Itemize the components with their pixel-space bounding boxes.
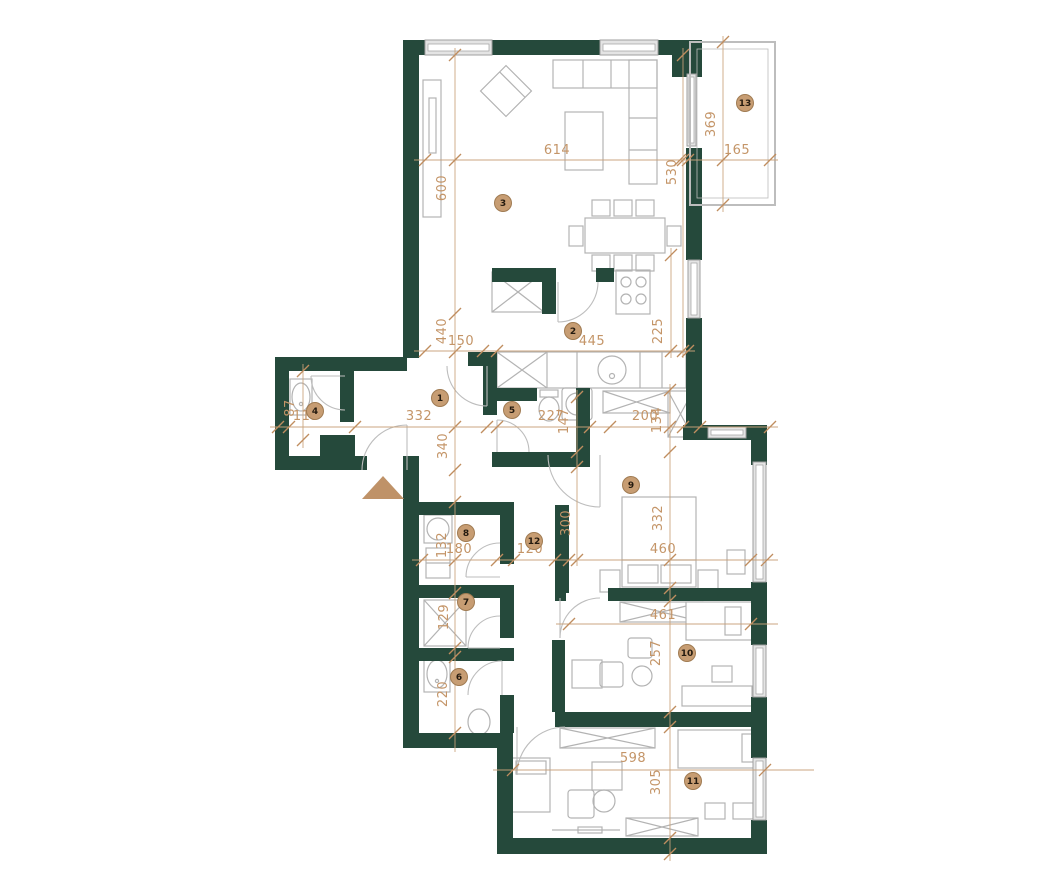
door bbox=[447, 366, 487, 406]
dimension-label: 332 bbox=[651, 505, 666, 531]
dimension-label: 257 bbox=[649, 640, 664, 666]
sofa bbox=[553, 60, 657, 184]
svg-text:1: 1 bbox=[437, 394, 443, 404]
floor-plan-canvas: 6146005303691654451504402251198733234022… bbox=[0, 0, 1049, 894]
radiator bbox=[429, 98, 436, 153]
dimension-label: 332 bbox=[406, 409, 432, 424]
dimension-label: 369 bbox=[704, 111, 719, 137]
kitchen-counter bbox=[497, 352, 686, 388]
dimension-label: 530 bbox=[665, 159, 680, 185]
svg-text:9: 9 bbox=[628, 481, 634, 491]
room-marker-6: 6 bbox=[451, 669, 468, 686]
dimension-label: 614 bbox=[544, 143, 570, 158]
room-marker-5: 5 bbox=[504, 402, 521, 419]
window bbox=[753, 758, 766, 820]
svg-text:11: 11 bbox=[687, 777, 700, 787]
dimension-label: 598 bbox=[620, 751, 646, 766]
floor-plan-page: 6146005303691654451504402251198733234022… bbox=[0, 0, 1049, 894]
stove bbox=[616, 270, 650, 314]
dimension-label: 305 bbox=[649, 769, 664, 795]
door bbox=[497, 420, 529, 452]
dimension-label: 87 bbox=[283, 399, 298, 417]
entrance-door bbox=[362, 425, 407, 470]
dimension-label: 445 bbox=[579, 334, 605, 349]
dining-set bbox=[569, 200, 681, 271]
room-marker-3: 3 bbox=[495, 195, 512, 212]
dimension-label: 300 bbox=[559, 510, 574, 536]
room-marker-2: 2 bbox=[565, 323, 582, 340]
door bbox=[468, 661, 502, 695]
svg-text:13: 13 bbox=[739, 99, 752, 109]
dimension-label: 460 bbox=[650, 542, 676, 557]
window bbox=[753, 645, 766, 697]
balcony-door bbox=[687, 74, 696, 146]
windows-layer bbox=[425, 40, 775, 820]
bedroom11-furniture bbox=[512, 728, 758, 836]
dimension-label: 134 bbox=[650, 407, 665, 433]
balcony-outline bbox=[690, 42, 775, 205]
room-marker-8: 8 bbox=[458, 525, 475, 542]
room-marker-7: 7 bbox=[458, 594, 475, 611]
dimension-label: 129 bbox=[437, 604, 452, 630]
room-marker-12: 12 bbox=[526, 533, 543, 550]
dimension-label: 220 bbox=[436, 681, 451, 707]
room-marker-10: 10 bbox=[679, 645, 696, 662]
svg-text:10: 10 bbox=[681, 649, 694, 659]
room-marker-1: 1 bbox=[432, 390, 449, 407]
window bbox=[688, 260, 700, 318]
dimension-label: 150 bbox=[448, 334, 474, 349]
door bbox=[468, 616, 500, 648]
svg-text:3: 3 bbox=[500, 199, 506, 209]
room-marker-13: 13 bbox=[737, 95, 754, 112]
svg-text:12: 12 bbox=[528, 537, 541, 547]
door bbox=[558, 282, 598, 322]
svg-text:6: 6 bbox=[456, 673, 462, 683]
svg-text:7: 7 bbox=[463, 598, 469, 608]
dimension-label: 600 bbox=[435, 175, 450, 201]
dimension-label: 440 bbox=[435, 318, 450, 344]
dimension-label: 147 bbox=[557, 408, 572, 434]
kitchen-sink bbox=[598, 356, 626, 384]
svg-text:8: 8 bbox=[463, 529, 469, 539]
window bbox=[753, 462, 766, 582]
dimension-label: 340 bbox=[436, 433, 451, 459]
svg-text:2: 2 bbox=[570, 327, 576, 337]
room-marker-4: 4 bbox=[307, 403, 324, 420]
dimension-label: 225 bbox=[651, 318, 666, 344]
coffee-table bbox=[565, 112, 603, 170]
dimension-label: 132 bbox=[435, 532, 450, 558]
door bbox=[560, 598, 600, 638]
entrance-arrow bbox=[362, 476, 404, 499]
dimension-label: 461 bbox=[650, 608, 676, 623]
dimension-label: 165 bbox=[724, 143, 750, 158]
window bbox=[600, 40, 658, 55]
room-marker-9: 9 bbox=[623, 477, 640, 494]
svg-text:4: 4 bbox=[312, 407, 318, 417]
svg-text:5: 5 bbox=[509, 406, 515, 416]
window bbox=[708, 427, 746, 438]
room-marker-11: 11 bbox=[685, 773, 702, 790]
armchair bbox=[481, 66, 532, 117]
window bbox=[425, 40, 492, 55]
